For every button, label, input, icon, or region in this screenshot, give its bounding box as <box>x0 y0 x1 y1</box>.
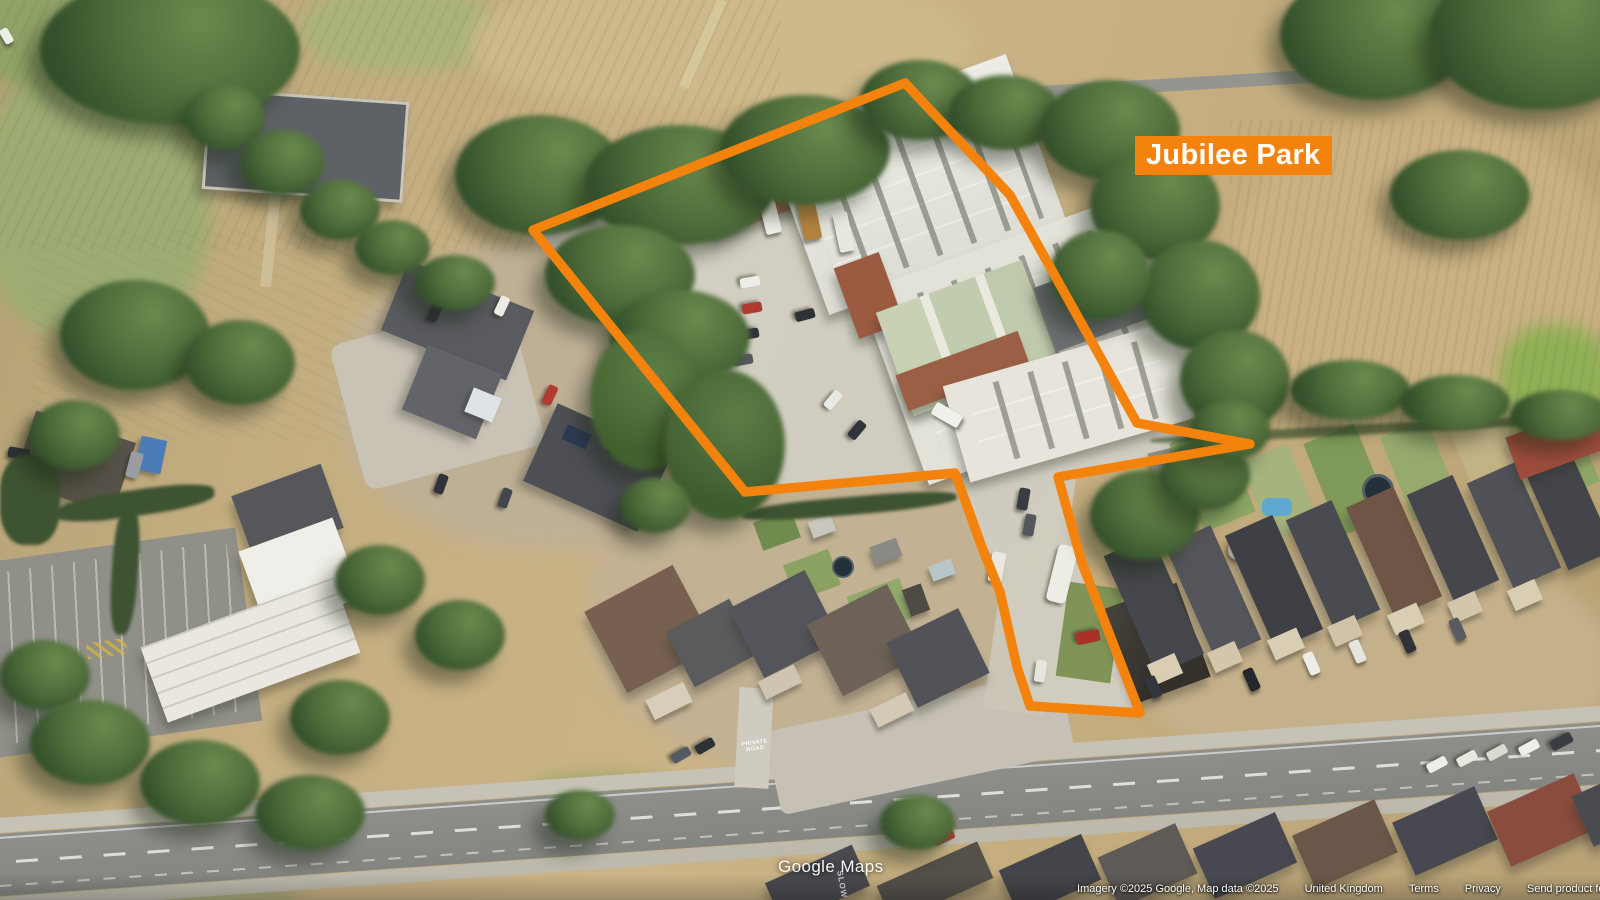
region-label: United Kingdom <box>1305 883 1383 895</box>
tree-cluster <box>1190 400 1270 460</box>
privacy-link[interactable]: Privacy <box>1465 883 1501 895</box>
verge-tree <box>880 795 955 850</box>
verge-tree <box>545 790 615 840</box>
solar-panel <box>561 424 591 449</box>
terms-link[interactable]: Terms <box>1409 883 1439 895</box>
tree-cluster <box>255 775 365 850</box>
tree-cluster <box>335 545 425 615</box>
tree-cluster <box>185 320 295 405</box>
tree-cluster <box>1390 150 1530 240</box>
tree-cluster <box>1430 0 1600 110</box>
google-maps-watermark: Google Maps <box>778 857 884 877</box>
trampoline <box>832 556 854 578</box>
tree-cluster <box>415 600 505 670</box>
tree-cluster <box>140 740 260 825</box>
tree-cluster <box>355 220 430 275</box>
hedge <box>0 455 60 545</box>
tree-cluster <box>415 255 495 310</box>
tree-cluster <box>620 478 690 533</box>
imagery-credit: Imagery ©2025 Google, Map data ©2025 <box>1077 883 1279 895</box>
feedback-link[interactable]: Send product feedback <box>1527 883 1600 895</box>
tree-cluster <box>290 680 390 755</box>
tree-row <box>1290 360 1410 420</box>
map-canvas[interactable]: PRIVATE ROAD SLOW Jubilee Park Google Ma… <box>0 0 1600 900</box>
parked-car <box>670 746 692 765</box>
tree-cluster <box>0 640 90 710</box>
tree-row <box>1400 375 1510 430</box>
tree-cluster <box>30 700 150 785</box>
attribution-bar: Imagery ©2025 Google, Map data ©2025 Uni… <box>1077 878 1600 900</box>
tree-row <box>1510 390 1600 440</box>
site-label: Jubilee Park <box>1135 136 1332 175</box>
tree-cluster <box>1050 230 1150 320</box>
satellite-imagery: PRIVATE ROAD SLOW <box>0 0 1600 900</box>
tree-cluster <box>240 130 325 195</box>
tree-cluster <box>30 400 120 470</box>
swimming-pool <box>1262 498 1292 516</box>
